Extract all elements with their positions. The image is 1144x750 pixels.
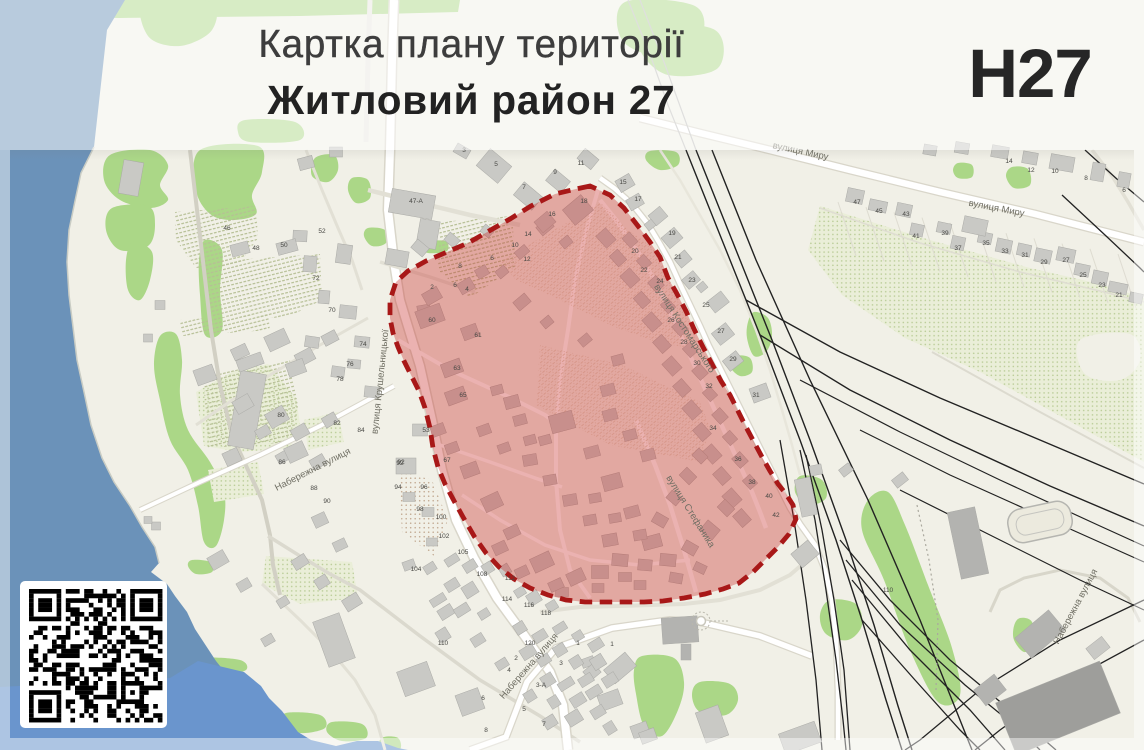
svg-text:2: 2	[514, 655, 518, 662]
svg-text:80: 80	[277, 412, 285, 419]
svg-text:1: 1	[576, 640, 580, 647]
svg-text:8: 8	[484, 727, 488, 734]
svg-text:67: 67	[443, 457, 451, 464]
svg-text:41: 41	[912, 233, 920, 240]
svg-text:35: 35	[982, 240, 990, 247]
svg-text:16: 16	[548, 211, 556, 218]
svg-text:20: 20	[631, 248, 639, 255]
svg-text:10: 10	[1051, 168, 1059, 175]
svg-text:70: 70	[328, 307, 336, 314]
svg-text:38: 38	[748, 479, 756, 486]
svg-text:29: 29	[729, 356, 737, 363]
svg-text:61: 61	[474, 332, 482, 339]
svg-text:72: 72	[312, 275, 320, 282]
svg-text:40: 40	[765, 493, 773, 500]
svg-text:9: 9	[553, 169, 557, 176]
svg-text:12: 12	[523, 256, 531, 263]
svg-text:21: 21	[1115, 292, 1123, 299]
svg-text:5: 5	[494, 161, 498, 168]
svg-text:31: 31	[752, 392, 760, 399]
svg-text:43: 43	[902, 211, 910, 218]
svg-text:5: 5	[522, 706, 526, 713]
svg-text:108: 108	[477, 571, 488, 578]
svg-text:23: 23	[688, 277, 696, 284]
svg-text:76: 76	[346, 361, 354, 368]
svg-text:42: 42	[772, 512, 780, 519]
svg-text:27: 27	[717, 328, 725, 335]
svg-text:110: 110	[883, 587, 894, 594]
svg-text:78: 78	[336, 376, 344, 383]
svg-text:17: 17	[634, 196, 642, 203]
svg-text:33: 33	[1001, 248, 1009, 255]
svg-text:19: 19	[668, 230, 676, 237]
svg-text:63: 63	[453, 365, 461, 372]
svg-text:48: 48	[252, 245, 260, 252]
svg-text:1: 1	[610, 641, 614, 648]
svg-text:12: 12	[1027, 167, 1035, 174]
svg-text:31: 31	[1021, 252, 1029, 259]
svg-text:36: 36	[734, 456, 742, 463]
svg-text:52: 52	[318, 228, 326, 235]
svg-text:30: 30	[693, 360, 701, 367]
svg-text:88: 88	[310, 485, 318, 492]
svg-text:105: 105	[458, 549, 469, 556]
svg-text:22: 22	[640, 267, 648, 274]
svg-text:28: 28	[680, 339, 688, 346]
svg-text:120: 120	[525, 640, 536, 647]
svg-text:32: 32	[705, 383, 713, 390]
svg-text:114: 114	[502, 596, 513, 603]
svg-text:3: 3	[559, 660, 563, 667]
svg-text:53: 53	[422, 427, 430, 434]
svg-text:18: 18	[580, 198, 588, 205]
svg-text:6: 6	[481, 695, 485, 702]
svg-text:98: 98	[416, 506, 424, 513]
svg-text:6: 6	[1122, 187, 1126, 194]
svg-text:60: 60	[428, 317, 436, 324]
svg-text:7: 7	[522, 184, 526, 191]
svg-text:8: 8	[458, 263, 462, 270]
svg-text:6: 6	[453, 282, 457, 289]
svg-text:37: 37	[954, 245, 962, 252]
svg-text:25: 25	[702, 302, 710, 309]
svg-text:21: 21	[674, 254, 682, 261]
svg-text:104: 104	[411, 566, 422, 573]
svg-text:74: 74	[359, 341, 367, 348]
svg-text:96: 96	[420, 484, 428, 491]
svg-text:84: 84	[357, 427, 365, 434]
svg-text:26: 26	[667, 317, 675, 324]
svg-text:4: 4	[465, 286, 469, 293]
svg-text:15: 15	[619, 179, 627, 186]
svg-text:47-А: 47-А	[409, 198, 423, 205]
svg-text:102: 102	[439, 533, 450, 540]
svg-text:7: 7	[542, 721, 546, 728]
svg-text:10: 10	[511, 242, 519, 249]
svg-text:100: 100	[436, 514, 447, 521]
svg-text:6: 6	[490, 255, 494, 262]
svg-text:92: 92	[396, 460, 404, 467]
svg-text:90: 90	[323, 498, 331, 505]
svg-text:25: 25	[1079, 272, 1087, 279]
svg-text:116: 116	[524, 602, 535, 609]
svg-text:45: 45	[875, 208, 883, 215]
svg-text:112: 112	[505, 575, 516, 582]
svg-text:86: 86	[278, 459, 286, 466]
svg-text:46: 46	[223, 225, 231, 232]
svg-text:82: 82	[333, 420, 341, 427]
svg-text:50: 50	[280, 242, 288, 249]
svg-text:8: 8	[1084, 175, 1088, 182]
svg-text:2: 2	[430, 284, 434, 291]
svg-text:3-А: 3-А	[536, 682, 547, 689]
svg-text:4: 4	[507, 667, 511, 674]
svg-text:23: 23	[1098, 282, 1106, 289]
svg-text:11: 11	[578, 160, 585, 167]
svg-text:94: 94	[394, 484, 402, 491]
svg-text:39: 39	[941, 230, 949, 237]
svg-text:118: 118	[541, 610, 552, 617]
svg-text:47: 47	[853, 199, 861, 206]
svg-text:14: 14	[524, 231, 532, 238]
svg-text:65: 65	[459, 392, 467, 399]
svg-text:29: 29	[1040, 259, 1048, 266]
svg-text:34: 34	[709, 425, 717, 432]
svg-text:24: 24	[656, 278, 664, 285]
svg-text:27: 27	[1062, 257, 1070, 264]
svg-text:110: 110	[438, 640, 449, 647]
